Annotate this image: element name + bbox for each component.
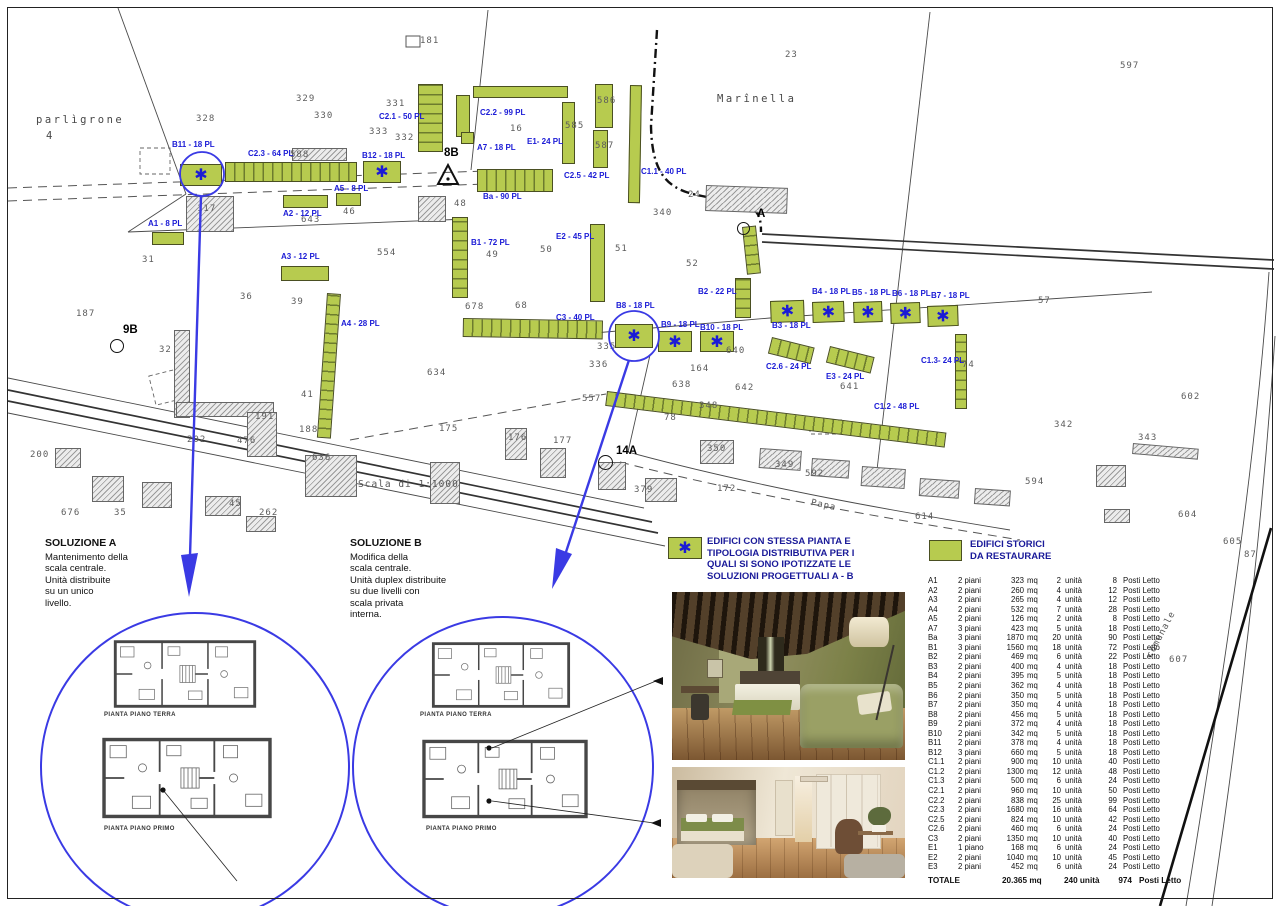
- green-building-B2: [735, 278, 751, 318]
- parcel-number: 557: [582, 394, 601, 404]
- parcel-number: 35: [114, 508, 127, 518]
- table-cell: 28: [1095, 605, 1117, 615]
- table-cell: 2 piani: [958, 834, 996, 844]
- parcel-number: 52: [686, 259, 699, 269]
- table-cell: Posti Letto: [1117, 738, 1160, 748]
- same-plan-asterisk-icon: ✱: [854, 302, 882, 322]
- table-row: B123 piani660mq5unità18Posti Letto: [928, 748, 1174, 758]
- table-row: B42 piani395mq5unità18Posti Letto: [928, 671, 1174, 681]
- table-cell: E2: [928, 853, 958, 863]
- map-marker-A: A: [757, 208, 765, 220]
- table-cell: 2: [1043, 614, 1061, 624]
- table-cell: 6: [1043, 776, 1061, 786]
- text-line: scala privata: [350, 598, 490, 610]
- table-cell: 2 piani: [958, 729, 996, 739]
- table-cell: Posti Letto: [1117, 853, 1160, 863]
- building-label: A4 - 28 PL: [341, 319, 380, 328]
- area-label: parlìgrone: [36, 114, 124, 126]
- table-cell: 323: [996, 576, 1024, 586]
- parcel-number: 32: [159, 345, 172, 355]
- table-cell: 395: [996, 671, 1024, 681]
- table-cell: unità: [1061, 700, 1095, 710]
- green-building-C2.2: [461, 132, 474, 144]
- solution-a-description: Mantenimento dellascala centrale.Unità d…: [45, 552, 185, 610]
- table-cell: 4: [1043, 738, 1061, 748]
- table-cell: 2 piani: [958, 605, 996, 615]
- parcel-number: 335: [597, 342, 616, 352]
- table-cell: 6: [1043, 843, 1061, 853]
- text-line: Unità distribuite: [45, 575, 185, 587]
- parcel-number: 175: [439, 424, 458, 434]
- building-label: B6 - 18 PL: [892, 289, 931, 298]
- photo-bedroom: [672, 592, 905, 760]
- table-cell: mq: [1024, 595, 1043, 605]
- building-label: C2.2 - 99 PL: [480, 108, 525, 117]
- table-cell: 40: [1095, 834, 1117, 844]
- solution-a-title: SOLUZIONE A: [45, 538, 185, 550]
- table-cell: 3 piani: [958, 624, 996, 634]
- table-cell: 40: [1095, 757, 1117, 767]
- area-label: 4: [46, 130, 55, 142]
- parcel-number: 594: [1025, 477, 1044, 487]
- table-cell: Posti Letto: [1117, 624, 1160, 634]
- area-label: Marînella: [717, 93, 796, 105]
- hatched-building: [186, 196, 234, 232]
- mirror: [775, 780, 793, 835]
- same-plan-asterisk-icon: ✱: [928, 306, 958, 326]
- green-building-E1: [562, 102, 575, 164]
- map-marker-circle: [110, 339, 124, 353]
- parcel-number: 634: [427, 368, 446, 378]
- table-cell: Posti Letto: [1117, 691, 1160, 701]
- floor-plan-b-primo: [422, 738, 588, 820]
- table-row: A32 piani265mq4unità12Posti Letto: [928, 595, 1174, 605]
- table-cell: A7: [928, 624, 958, 634]
- table-cell: mq: [1024, 719, 1043, 729]
- parcel-number: 78: [664, 413, 677, 423]
- plant-pot: [872, 825, 886, 833]
- table-cell: 18: [1095, 671, 1117, 681]
- table-cell: 1300: [996, 767, 1024, 777]
- parcel-number: 41: [301, 390, 314, 400]
- table-cell: A5: [928, 614, 958, 624]
- parcel-number: 36: [240, 292, 253, 302]
- text-line: EDIFICI CON STESSA PIANTA E: [707, 536, 932, 548]
- legend-asterisk-swatch: ✱: [668, 537, 702, 559]
- building-data-table: A12 piani323mq2unità8Posti LettoA22 pian…: [928, 576, 1174, 872]
- table-cell: unità: [1061, 824, 1095, 834]
- table-row: C1.22 piani1300mq12unità48Posti Letto: [928, 767, 1174, 777]
- total-mq: 20.365 mq: [1002, 876, 1064, 885]
- table-cell: 18: [1095, 624, 1117, 634]
- table-cell: 6: [1043, 862, 1061, 872]
- parcel-number: 176: [508, 433, 527, 443]
- table-cell: Posti Letto: [1117, 843, 1160, 853]
- table-row: Ba3 piani1870mq20unità90Posti Letto: [928, 633, 1174, 643]
- plan-label: PIANTA PIANO PRIMO: [426, 826, 497, 832]
- table-cell: mq: [1024, 624, 1043, 634]
- parcel-number: 31: [142, 255, 155, 265]
- table-cell: mq: [1024, 824, 1043, 834]
- table-cell: 2 piani: [958, 862, 996, 872]
- text-line: Mantenimento della: [45, 552, 185, 564]
- hatched-building: [705, 185, 788, 214]
- table-cell: unità: [1061, 719, 1095, 729]
- table-total-row: TOTALE 20.365 mq 240 unità 974 Posti Let…: [928, 876, 1181, 885]
- table-cell: unità: [1061, 757, 1095, 767]
- table-row: C1.12 piani900mq10unità40Posti Letto: [928, 757, 1174, 767]
- table-cell: Ba: [928, 633, 958, 643]
- table-cell: mq: [1024, 834, 1043, 844]
- parcel-number: 187: [76, 309, 95, 319]
- table-cell: mq: [1024, 757, 1043, 767]
- table-cell: 838: [996, 796, 1024, 806]
- pillow: [712, 814, 733, 823]
- building-label: E3 - 24 PL: [826, 372, 864, 381]
- plan-label: PIANTA PIANO TERRA: [104, 712, 176, 718]
- map-marker-circle: [598, 455, 613, 470]
- parcel-number: 262: [259, 508, 278, 518]
- table-cell: unità: [1061, 786, 1095, 796]
- table-cell: 64: [1095, 805, 1117, 815]
- table-cell: 2 piani: [958, 710, 996, 720]
- table-cell: 2 piani: [958, 796, 996, 806]
- legend-asterisk-text: EDIFICI CON STESSA PIANTA ETIPOLOGIA DIS…: [707, 536, 932, 582]
- table-cell: mq: [1024, 748, 1043, 758]
- table-row: B82 piani456mq5unità18Posti Letto: [928, 710, 1174, 720]
- table-cell: Posti Letto: [1117, 748, 1160, 758]
- parcel-number: 329: [296, 94, 315, 104]
- building-label: B5 - 18 PL: [852, 288, 891, 297]
- table-cell: Posti Letto: [1117, 614, 1160, 624]
- table-cell: A2: [928, 586, 958, 596]
- hallway-light: [795, 776, 811, 843]
- table-cell: 18: [1095, 710, 1117, 720]
- table-cell: mq: [1024, 605, 1043, 615]
- parcel-number: 172: [717, 484, 736, 494]
- table-cell: 8: [1095, 576, 1117, 586]
- table-cell: unità: [1061, 681, 1095, 691]
- table-cell: 2 piani: [958, 757, 996, 767]
- table-cell: Posti Letto: [1117, 662, 1160, 672]
- parcel-number: 24: [688, 190, 701, 200]
- table-cell: 362: [996, 681, 1024, 691]
- table-cell: 24: [1095, 862, 1117, 872]
- parcel-number: 592: [805, 469, 824, 479]
- table-cell: unità: [1061, 633, 1095, 643]
- table-cell: B9: [928, 719, 958, 729]
- table-cell: unità: [1061, 576, 1095, 586]
- table-row: B92 piani372mq4unità18Posti Letto: [928, 719, 1174, 729]
- bed-skirt: [681, 831, 744, 841]
- text-line: DA RESTAURARE: [970, 551, 1120, 563]
- parcel-number: 57: [1038, 296, 1051, 306]
- parcel-number: 48: [454, 199, 467, 209]
- table-cell: C1.1: [928, 757, 958, 767]
- table-row: B13 piani1560mq18unità72Posti Letto: [928, 643, 1174, 653]
- table-cell: 18: [1095, 700, 1117, 710]
- parcel-number: 49: [486, 250, 499, 260]
- table-cell: B7: [928, 700, 958, 710]
- parcel-number: 642: [735, 383, 754, 393]
- building-label: B8 - 18 PL: [616, 301, 655, 310]
- table-cell: 2 piani: [958, 786, 996, 796]
- table-cell: unità: [1061, 834, 1095, 844]
- table-cell: 24: [1095, 776, 1117, 786]
- table-row: C2.12 piani960mq10unità50Posti Letto: [928, 786, 1174, 796]
- table-row: B52 piani362mq4unità18Posti Letto: [928, 681, 1174, 691]
- table-cell: 4: [1043, 662, 1061, 672]
- text-line: interna.: [350, 609, 490, 621]
- table-cell: 2 piani: [958, 853, 996, 863]
- hatched-building: [861, 466, 906, 489]
- map-marker-circle: [737, 222, 750, 235]
- table-cell: 456: [996, 710, 1024, 720]
- table-cell: Posti Letto: [1117, 586, 1160, 596]
- parcel-number: 51: [615, 244, 628, 254]
- table-cell: Posti Letto: [1117, 834, 1160, 844]
- table-cell: Posti Letto: [1117, 681, 1160, 691]
- parcel-number: 343: [1138, 433, 1157, 443]
- table-cell: mq: [1024, 681, 1043, 691]
- text-line: su due livelli con: [350, 586, 490, 598]
- parcel-number: 379: [634, 485, 653, 495]
- parcel-number: 23: [785, 50, 798, 60]
- scale-note: Scala di 1:1000: [358, 479, 459, 490]
- table-cell: mq: [1024, 633, 1043, 643]
- table-cell: mq: [1024, 862, 1043, 872]
- building-label: B7 - 18 PL: [931, 291, 970, 300]
- pillow: [686, 814, 707, 823]
- table-cell: 378: [996, 738, 1024, 748]
- table-row: B22 piani469mq6unità22Posti Letto: [928, 652, 1174, 662]
- parcel-number: 587: [595, 141, 614, 151]
- table-cell: 400: [996, 662, 1024, 672]
- table-cell: unità: [1061, 671, 1095, 681]
- solution-b-title: SOLUZIONE B: [350, 538, 490, 550]
- table-cell: 2 piani: [958, 805, 996, 815]
- table-cell: B1: [928, 643, 958, 653]
- parcel-number: 604: [1178, 510, 1197, 520]
- table-cell: Posti Letto: [1117, 652, 1160, 662]
- solution-b-description: Modifica dellascala centrale.Unità duple…: [350, 552, 490, 621]
- table-cell: Posti Letto: [1117, 633, 1160, 643]
- table-row: A22 piani260mq4unità12Posti Letto: [928, 586, 1174, 596]
- table-cell: B5: [928, 681, 958, 691]
- table-cell: mq: [1024, 643, 1043, 653]
- table-cell: 2 piani: [958, 614, 996, 624]
- table-cell: 16: [1043, 805, 1061, 815]
- table-cell: mq: [1024, 805, 1043, 815]
- table-cell: 42: [1095, 815, 1117, 825]
- same-plan-asterisk-icon: ✱: [181, 165, 221, 185]
- table-cell: 900: [996, 757, 1024, 767]
- table-row: A42 piani532mq7unità28Posti Letto: [928, 605, 1174, 615]
- same-plan-asterisk-icon: ✱: [678, 540, 691, 556]
- table-cell: 1680: [996, 805, 1024, 815]
- table-cell: 18: [1095, 662, 1117, 672]
- table-cell: 1870: [996, 633, 1024, 643]
- table-cell: 8: [1095, 614, 1117, 624]
- hatched-building: [540, 448, 566, 478]
- table-cell: mq: [1024, 853, 1043, 863]
- same-plan-asterisk-icon: ✱: [771, 301, 804, 322]
- building-label: A1 - 8 PL: [148, 219, 182, 228]
- legend-green-swatch: [929, 540, 962, 561]
- table-cell: C2.5: [928, 815, 958, 825]
- hatched-building: [142, 482, 172, 508]
- table-cell: Posti Letto: [1117, 700, 1160, 710]
- parcel-number: 614: [915, 512, 934, 522]
- hatched-building: [246, 516, 276, 532]
- floor-lamp-shade: [849, 617, 889, 647]
- parcel-number: 332: [395, 133, 414, 143]
- green-building-C2.2: [473, 86, 568, 98]
- building-label: B12 - 18 PL: [362, 151, 405, 160]
- table-cell: B6: [928, 691, 958, 701]
- table-cell: 260: [996, 586, 1024, 596]
- table-cell: C2.3: [928, 805, 958, 815]
- table-cell: 2 piani: [958, 700, 996, 710]
- table-cell: 2 piani: [958, 738, 996, 748]
- table-cell: unità: [1061, 605, 1095, 615]
- green-building-B3: ✱: [770, 300, 805, 323]
- table-cell: B4: [928, 671, 958, 681]
- parcel-number: 117: [197, 204, 216, 214]
- table-cell: mq: [1024, 815, 1043, 825]
- table-cell: 452: [996, 862, 1024, 872]
- wall-lamp: [707, 659, 723, 678]
- same-plan-asterisk-icon: ✱: [616, 325, 652, 347]
- table-cell: A4: [928, 605, 958, 615]
- table-cell: unità: [1061, 614, 1095, 624]
- parcel-number: 336: [589, 360, 608, 370]
- green-building-A2: [283, 195, 328, 208]
- table-cell: Posti Letto: [1117, 757, 1160, 767]
- table-cell: 10: [1043, 786, 1061, 796]
- text-line: SOLUZIONI PROGETTUALI A - B: [707, 571, 932, 583]
- table-cell: 22: [1095, 652, 1117, 662]
- table-cell: 5: [1043, 710, 1061, 720]
- parcel-number: 676: [61, 508, 80, 518]
- parcel-number: 328: [196, 114, 215, 124]
- table-cell: C1.3: [928, 776, 958, 786]
- green-building-C2.3: [225, 162, 357, 182]
- parcel-number: 331: [386, 99, 405, 109]
- sofa-left: [672, 844, 733, 878]
- green-building-A3: [281, 266, 329, 281]
- parcel-number: 602: [1181, 392, 1200, 402]
- total-label: TOTALE: [928, 876, 1002, 885]
- parcel-number: 68: [515, 301, 528, 311]
- parcel-number: 340: [653, 208, 672, 218]
- table-cell: unità: [1061, 710, 1095, 720]
- road-label: Papa: [810, 498, 837, 513]
- table-row: B72 piani350mq4unità18Posti Letto: [928, 700, 1174, 710]
- parcel-number: 350: [707, 444, 726, 454]
- table-cell: 469: [996, 652, 1024, 662]
- green-building-B4: ✱: [812, 301, 845, 323]
- table-cell: 168: [996, 843, 1024, 853]
- air-vent: [800, 776, 828, 782]
- building-label: E2 - 45 PL: [556, 232, 594, 241]
- building-label: E1- 24 PL: [527, 137, 563, 146]
- table-cell: 500: [996, 776, 1024, 786]
- parcel-number: 202: [187, 435, 206, 445]
- table-cell: 48: [1095, 767, 1117, 777]
- hatched-building: [418, 196, 446, 222]
- text-line: TIPOLOGIA DISTRIBUTIVA PER I: [707, 548, 932, 560]
- table-cell: 350: [996, 700, 1024, 710]
- table-cell: unità: [1061, 624, 1095, 634]
- table-cell: unità: [1061, 776, 1095, 786]
- table-cell: 960: [996, 786, 1024, 796]
- parcel-number: 605: [1223, 537, 1242, 547]
- table-cell: unità: [1061, 643, 1095, 653]
- table-cell: mq: [1024, 671, 1043, 681]
- table-cell: A3: [928, 595, 958, 605]
- hatched-building: [1096, 465, 1126, 487]
- hatched-building: [1104, 509, 1130, 523]
- table-cell: 10: [1043, 815, 1061, 825]
- table-row: C2.62 piani460mq6unità24Posti Letto: [928, 824, 1174, 834]
- parcel-number: 181: [420, 36, 439, 46]
- table-cell: mq: [1024, 843, 1043, 853]
- table-cell: unità: [1061, 862, 1095, 872]
- parcel-number: 16: [510, 124, 523, 134]
- same-plan-asterisk-icon: ✱: [364, 162, 400, 182]
- floor-plan-a-primo: [102, 736, 272, 820]
- parcel-number: 177: [553, 436, 572, 446]
- green-building-B5: ✱: [853, 301, 883, 323]
- table-cell: 2 piani: [958, 671, 996, 681]
- table-cell: 2 piani: [958, 595, 996, 605]
- green-building-A4: [317, 293, 341, 439]
- table-cell: mq: [1024, 700, 1043, 710]
- green-building-C1.1: [628, 85, 642, 203]
- table-cell: E1: [928, 843, 958, 853]
- table-row: B32 piani400mq4unità18Posti Letto: [928, 662, 1174, 672]
- table-cell: 50: [1095, 786, 1117, 796]
- table-cell: 1040: [996, 853, 1024, 863]
- table-row: C2.52 piani824mq10unità42Posti Letto: [928, 815, 1174, 825]
- map-marker-14A: 14A: [616, 445, 637, 457]
- hatched-building: [55, 448, 81, 468]
- table-cell: 3 piani: [958, 748, 996, 758]
- table-cell: mq: [1024, 586, 1043, 596]
- building-label: B3 - 18 PL: [772, 321, 811, 330]
- table-cell: 72: [1095, 643, 1117, 653]
- table-cell: unità: [1061, 843, 1095, 853]
- table-cell: 4: [1043, 586, 1061, 596]
- table-cell: 2 piani: [958, 815, 996, 825]
- green-building-B1: [452, 217, 468, 298]
- table-cell: 2 piani: [958, 824, 996, 834]
- table-cell: 12: [1043, 767, 1061, 777]
- table-cell: Posti Letto: [1117, 805, 1160, 815]
- green-building-A5: [336, 193, 361, 206]
- table-cell: unità: [1061, 767, 1095, 777]
- solution-a-block: SOLUZIONE A Mantenimento dellascala cent…: [45, 538, 185, 609]
- table-cell: 4: [1043, 595, 1061, 605]
- table-cell: Posti Letto: [1117, 824, 1160, 834]
- table-cell: mq: [1024, 614, 1043, 624]
- table-cell: 2 piani: [958, 776, 996, 786]
- table-cell: 10: [1043, 853, 1061, 863]
- table-cell: 3 piani: [958, 643, 996, 653]
- table-cell: unità: [1061, 595, 1095, 605]
- parcel-number: 349: [775, 460, 794, 470]
